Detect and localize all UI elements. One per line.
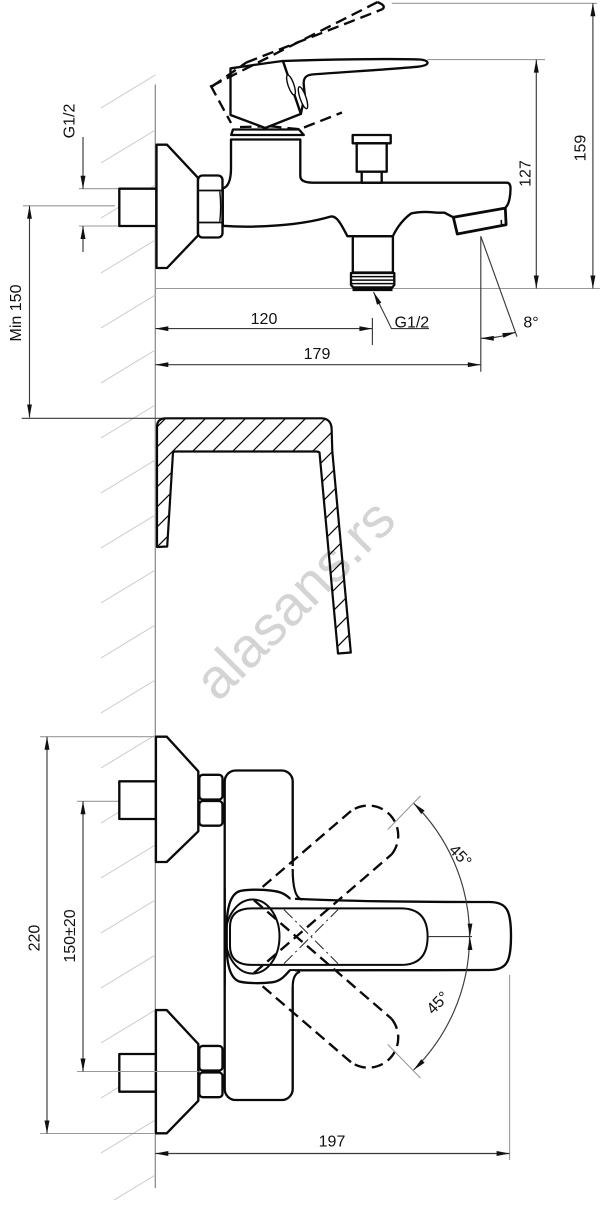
svg-text:Min 150: Min 150 [8, 284, 25, 341]
svg-text:220: 220 [27, 925, 44, 952]
svg-text:150±20: 150±20 [62, 909, 79, 962]
svg-text:8°: 8° [523, 315, 538, 332]
svg-text:179: 179 [304, 346, 331, 363]
svg-text:127: 127 [518, 160, 535, 187]
svg-text:G1/2: G1/2 [395, 315, 430, 332]
svg-text:159: 159 [573, 135, 590, 162]
svg-text:197: 197 [319, 1133, 346, 1150]
svg-text:G1/2: G1/2 [62, 104, 79, 139]
svg-text:120: 120 [251, 311, 278, 328]
